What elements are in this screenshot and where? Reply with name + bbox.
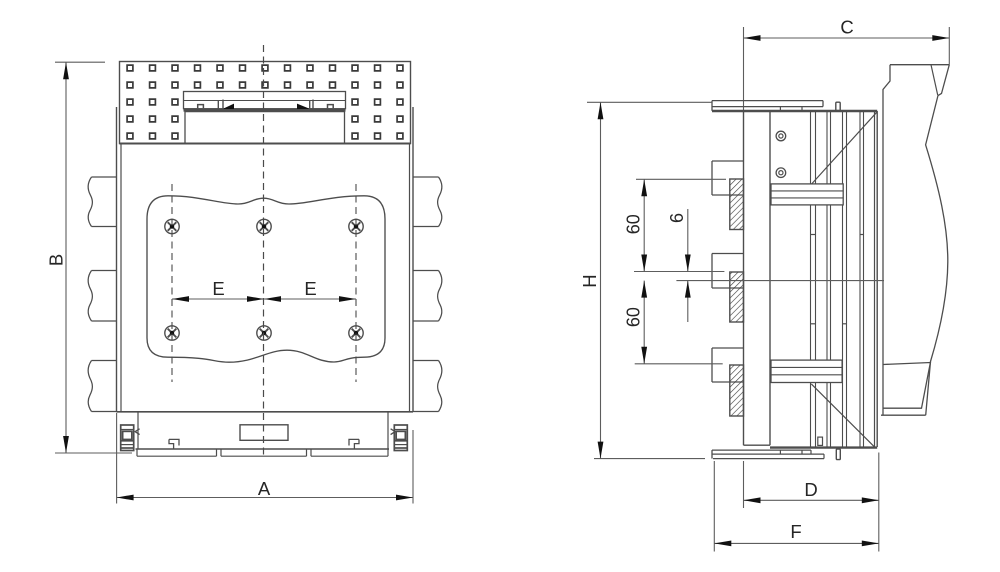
svg-text:E: E [304,278,316,299]
svg-text:60: 60 [623,307,643,327]
svg-text:6: 6 [667,213,687,223]
svg-text:F: F [790,521,801,542]
svg-text:E: E [212,278,224,299]
svg-text:60: 60 [623,214,643,234]
svg-text:A: A [258,478,271,499]
svg-text:H: H [579,274,600,287]
svg-text:D: D [804,479,817,500]
svg-text:B: B [46,254,67,266]
svg-text:C: C [840,17,853,38]
